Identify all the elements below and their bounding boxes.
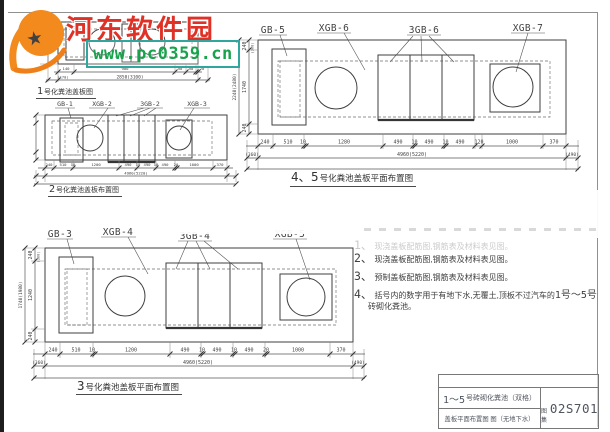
dim-label: 370 xyxy=(336,348,345,354)
dim-label: 1240 xyxy=(28,289,34,301)
dim-label: 1000 xyxy=(189,162,199,167)
dim-label: (360) xyxy=(245,152,259,158)
slab-label: 3GB-2 xyxy=(140,100,160,108)
note-number: 2、 xyxy=(354,251,372,265)
slab-label: XGB-7 xyxy=(513,23,544,34)
dim-total-label: 4960(5220) xyxy=(124,171,147,176)
dim-label: 10 xyxy=(199,348,205,354)
slab-label: GB-5 xyxy=(261,25,285,36)
slab-labels: GB-3 XGB-4 3GB-4 XGB-5 xyxy=(47,227,310,280)
white-patch-over-labels xyxy=(170,214,346,234)
dim-label: 370 xyxy=(549,140,558,146)
dim-label: 1200 xyxy=(125,348,137,354)
caption-text: 号化粪池盖板布置图 xyxy=(56,187,119,194)
note-text: 括号内的数字用于有地下水,无覆土,顶板不过汽车的 xyxy=(374,291,554,300)
dim-label: 490 xyxy=(455,140,464,146)
dim-total-label: 2240(2480) xyxy=(232,73,238,100)
atlas-code: 02S701 xyxy=(550,401,598,416)
drawing-3-caption: 3号化粪池盖板平面布置图 xyxy=(76,378,182,395)
dim-label: 370 xyxy=(216,162,224,167)
dimension-lines: 240 510 10 1200 490 10 490 10 490 20 100… xyxy=(18,246,367,381)
dim-label: (300) xyxy=(251,43,255,54)
note-number: 3、 xyxy=(354,269,372,283)
hedong-logo-icon: ★ xyxy=(4,4,74,74)
note-4: 4、括号内的数字用于有地下水,无覆土,顶板不过汽车的1号～5号 xyxy=(354,286,597,302)
dim-label: 490 xyxy=(124,162,132,167)
manhole-circle xyxy=(493,67,533,107)
dim-label: (490) xyxy=(351,360,365,366)
dim-label: (360) xyxy=(32,360,46,366)
dim-label: 240 xyxy=(260,140,269,146)
slab-label: XGB-4 xyxy=(103,227,134,238)
slab-label: XGB-2 xyxy=(92,100,112,108)
dim-label: 490 xyxy=(161,162,169,167)
drawing-2-caption: 2号化粪池盖板布置图 xyxy=(48,184,122,197)
note-text: 预制盖板配筋图,钢筋表及材料表见图。 xyxy=(374,273,512,282)
caption-number: 2 xyxy=(49,184,55,195)
dim-label: (300) xyxy=(37,252,41,263)
note-range: 1号～5号 xyxy=(555,290,597,301)
manhole-circle xyxy=(105,276,145,316)
dim-label: 240 xyxy=(242,41,248,50)
manhole-circle xyxy=(77,125,103,151)
dim-label: 10 xyxy=(136,162,141,167)
title-block: 1～5号砖砌化粪池（双格） 盖板平面布置图 图（无地下水） 图集02S701 xyxy=(438,374,599,429)
caption-number: 4、5 xyxy=(291,169,319,184)
dim-label: 20 xyxy=(263,348,269,354)
erased-text-smear xyxy=(364,228,598,231)
plan-outline xyxy=(45,248,353,342)
sheet-title-text: 号砖砌化粪池（双格） xyxy=(466,393,536,403)
slab-label: XGB-6 xyxy=(319,23,350,34)
dim-total-label: 4960(5220) xyxy=(397,152,427,158)
slab-label: GB-1 xyxy=(57,100,73,108)
dimension-lines: 240 510 10 1280 490 10 490 10 490 120 10… xyxy=(232,38,581,172)
watermark-url: www.pc0359.cn xyxy=(93,44,233,64)
manhole-circle xyxy=(315,67,357,109)
dim-label: 10 xyxy=(300,140,306,146)
dim-label: 1000 xyxy=(292,348,304,354)
note-text: 砖砌化粪池。 xyxy=(368,302,416,311)
note-3: 3、预制盖板配筋图,钢筋表及材料表见图。 xyxy=(354,268,513,284)
slab-label: XGB-3 xyxy=(187,100,207,108)
drawing-3-plan: GB-3 XGB-4 3GB-4 XGB-5 240 510 10 xyxy=(18,222,368,400)
dim-label: 10 xyxy=(89,348,95,354)
dim-label: 10 xyxy=(442,140,448,146)
dim-label: 10 xyxy=(154,162,159,167)
title-block-empty-row xyxy=(439,375,598,388)
dim-label: 490 xyxy=(180,348,189,354)
dim-label: 510 xyxy=(59,162,67,167)
sheet-title-number: 1～5 xyxy=(443,391,465,406)
drawing-45-caption: 4、5号化粪池盖板平面布置图 xyxy=(290,166,416,187)
dim-label: 240 xyxy=(48,348,57,354)
dim-label: 510 xyxy=(71,348,80,354)
dim-label: 1200 xyxy=(91,162,101,167)
dim-total-label: 2850(3100) xyxy=(116,75,143,81)
slab-label: 3GB-6 xyxy=(409,25,440,36)
drawing-45-plan: GB-5 XGB-6 3GB-6 XGB-7 240 510 10 xyxy=(232,12,604,182)
dim-label: (490) xyxy=(565,152,579,158)
dim-label: 490 xyxy=(424,140,433,146)
dim-label: 240 xyxy=(45,162,53,167)
dim-label: 490 xyxy=(212,348,221,354)
slab-labels: GB-5 XGB-6 3GB-6 XGB-7 xyxy=(259,23,545,72)
white-patch-over-note xyxy=(352,190,608,238)
note-4-line2: 砖砌化粪池。 xyxy=(368,301,416,312)
caption-text: 号化粪池盖板平面布置图 xyxy=(86,382,180,392)
slab-label: GB-3 xyxy=(48,229,72,240)
dimension-lines: 240 510 10 1200 490 10 490 10 490 20 100… xyxy=(34,113,239,187)
dim-label: 490 xyxy=(244,348,253,354)
atlas-number-cell: 图集02S701 xyxy=(541,388,598,428)
caption-text: 号化粪池盖板平面布置图 xyxy=(320,173,414,183)
manhole-circle xyxy=(167,126,191,150)
dim-label: 1000 xyxy=(506,140,518,146)
sheet-subtitle: 盖板平面布置图 图（无地下水） xyxy=(439,409,540,428)
dim-label: 1280 xyxy=(338,140,350,146)
dim-label: 510 xyxy=(283,140,292,146)
dim-label: (170) xyxy=(58,76,69,80)
dim-label: 10 xyxy=(231,348,237,354)
caption-number: 3 xyxy=(77,378,85,393)
plan-outline xyxy=(45,115,227,162)
dim-label: 490 xyxy=(143,162,151,167)
dim-label: 10 xyxy=(411,140,417,146)
dim-label: 1740 xyxy=(242,81,248,93)
dim-total-label: 1740(1980) xyxy=(18,281,24,308)
dim-total-label: 4960(5220) xyxy=(183,360,213,366)
watermark-url-box: www.pc0359.cn xyxy=(86,40,240,68)
scanned-drawing-sheet: 140 900 90 90 20 (170) 2850(3100) 1号化粪池盖… xyxy=(0,0,610,432)
note-text: 现浇盖板配筋图,钢筋表及材料表见图。 xyxy=(374,255,512,264)
dim-label: 120 xyxy=(474,140,483,146)
sheet-subtitle-text: 盖板平面布置图 图（无地下水） xyxy=(445,414,535,423)
dim-label: 240 xyxy=(28,250,34,259)
caption-text: 号化粪池盖板图 xyxy=(44,89,93,96)
dim-label: 20 xyxy=(174,162,179,167)
manhole-circle xyxy=(287,278,325,316)
title-block-left: 1～5号砖砌化粪池（双格） 盖板平面布置图 图（无地下水） xyxy=(439,388,541,428)
plan-outline xyxy=(258,40,566,134)
dim-label: 490 xyxy=(393,140,402,146)
dim-label: 240 xyxy=(242,123,248,132)
dim-label: 240 xyxy=(28,331,34,340)
note-2: 2、现浇盖板配筋图,钢筋表及材料表见图。 xyxy=(354,250,513,266)
note-number: 4、 xyxy=(354,287,372,301)
dim-label: 10 xyxy=(71,162,76,167)
sheet-title: 1～5号砖砌化粪池（双格） xyxy=(439,388,540,409)
atlas-label: 图集 xyxy=(541,406,549,424)
